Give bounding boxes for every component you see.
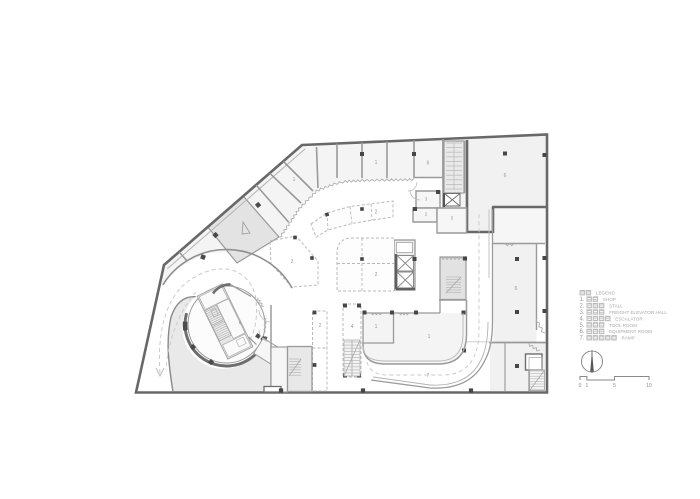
svg-text:10: 10	[646, 383, 652, 389]
svg-text:2.: 2.	[580, 303, 585, 309]
svg-text:SHOP: SHOP	[603, 297, 616, 302]
svg-text:1: 1	[293, 177, 296, 183]
svg-text:0: 0	[579, 383, 582, 389]
svg-text:1: 1	[375, 324, 378, 330]
svg-text:7.: 7.	[580, 336, 585, 342]
svg-text:EQUIPMENT ROOM: EQUIPMENT ROOM	[609, 329, 652, 334]
svg-text:1.: 1.	[580, 297, 585, 303]
svg-text:4.: 4.	[580, 316, 585, 322]
svg-text:3.: 3.	[580, 310, 585, 316]
svg-text:1: 1	[428, 334, 431, 340]
svg-text:6: 6	[427, 161, 430, 167]
svg-text:5: 5	[613, 383, 616, 389]
svg-text:FREIGHT ELEVATOR HALL: FREIGHT ELEVATOR HALL	[609, 310, 667, 315]
svg-text:1: 1	[586, 383, 589, 389]
svg-text:1: 1	[375, 160, 378, 166]
svg-text:2: 2	[291, 259, 294, 265]
svg-text:LEGEND: LEGEND	[596, 291, 616, 296]
svg-text:4: 4	[351, 324, 354, 330]
svg-text:7: 7	[427, 373, 430, 379]
svg-text:6: 6	[504, 173, 507, 179]
svg-text:STALL: STALL	[609, 303, 623, 308]
svg-text:6: 6	[515, 286, 518, 292]
svg-text:5.: 5.	[580, 323, 585, 329]
svg-text:2: 2	[375, 210, 378, 216]
svg-text:2: 2	[375, 272, 378, 278]
svg-text:6.: 6.	[580, 329, 585, 335]
svg-text:RAMP: RAMP	[622, 336, 635, 341]
svg-text:ESCALATOR: ESCALATOR	[615, 316, 643, 321]
svg-text:2: 2	[319, 323, 322, 329]
svg-text:TOOL ROOM: TOOL ROOM	[609, 323, 637, 328]
